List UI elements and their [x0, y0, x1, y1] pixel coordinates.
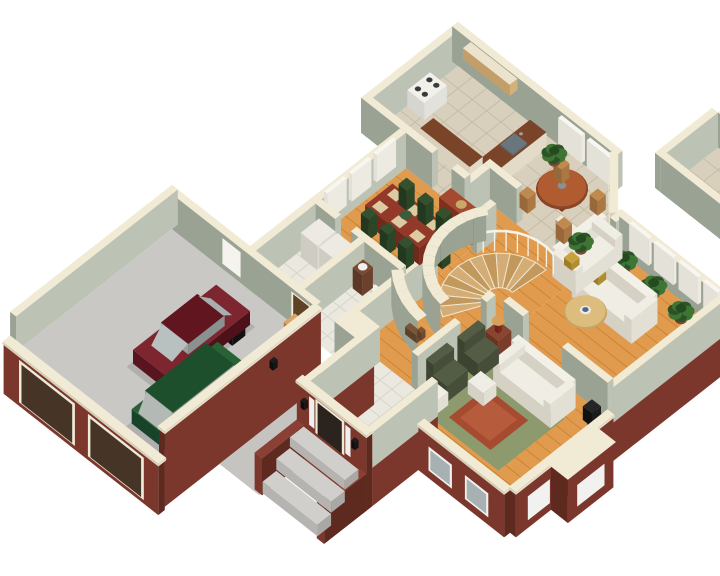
dining-chair-1	[399, 178, 415, 211]
buffet-bowl	[456, 200, 467, 209]
sidelight-right	[345, 425, 350, 458]
nook-angled-wall-cap	[610, 152, 618, 213]
dining-centerpiece	[400, 210, 412, 220]
coffee-table-decor	[582, 307, 588, 312]
floor-plan-rendering	[0, 0, 720, 576]
isometric-house-scene	[0, 0, 720, 576]
family-lamp-shade	[492, 316, 505, 326]
powder-basin	[358, 263, 368, 271]
dining-chair-2	[417, 192, 433, 225]
sidelight-left	[309, 396, 314, 429]
